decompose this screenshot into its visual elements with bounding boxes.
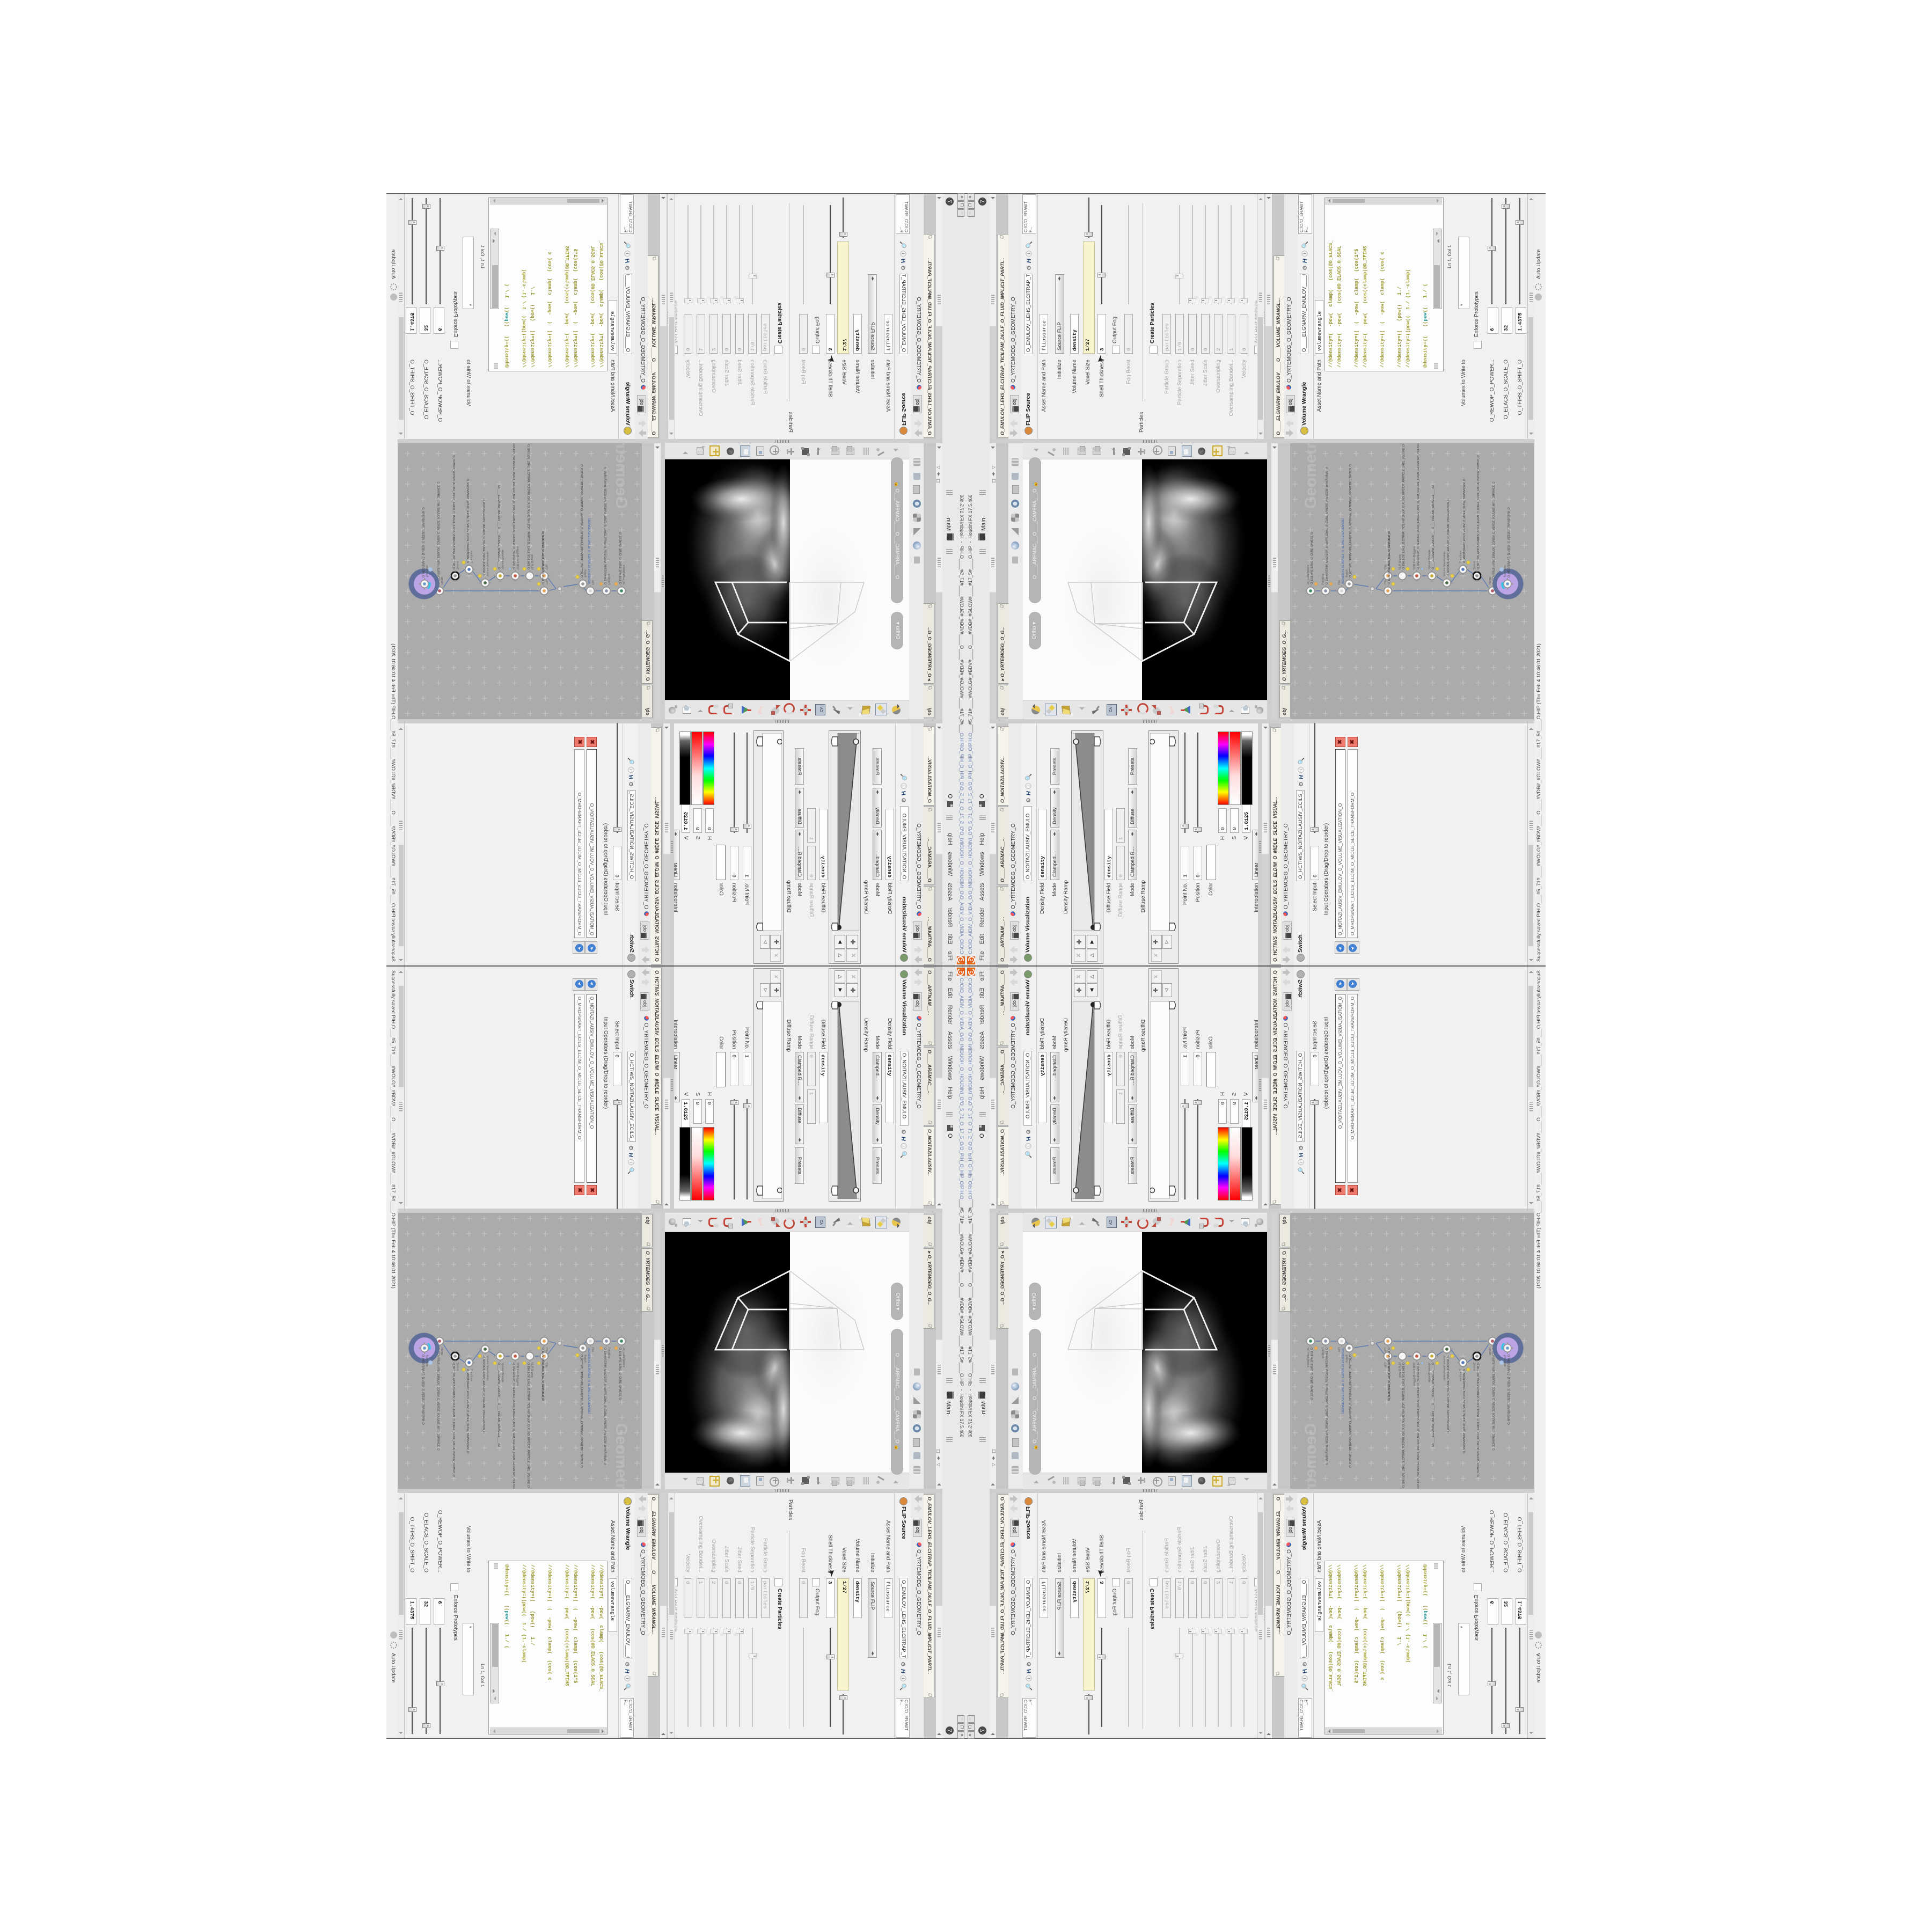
- svg-text:Clip: Clip: [1384, 1363, 1387, 1367]
- svg-text:O_MROFSNART_TLUSER_O_RESULT_TR: O_MROFSNART_TLUSER_O_RESULT_TRANSFORM_O: [421, 507, 425, 577]
- svg-text:FLIP Source: FLIP Source: [1399, 554, 1402, 569]
- svg-text:JBO.MD3.PETS.TEPOLS_O_SLOPET.S: JBO.MD3.PETS.TEPOLS_O_SLOPET.STEP.3DM.OB…: [587, 518, 590, 585]
- svg-text:O_MROFSNART_ECILS_ELDIM_O_MIDL: O_MROFSNART_ECILS_ELDIM_O_MIDLE_SLICE_TR…: [1463, 1369, 1466, 1453]
- svg-text:O_HCTIWS_NOITAZILAUSIV_ECILS_E: O_HCTIWS_NOITAZILAUSIV_ECILS_ELDIM_O_MID…: [1477, 455, 1480, 569]
- svg-text:Merge: Merge: [1489, 577, 1492, 584]
- svg-text:Transform: Transform: [1504, 1355, 1507, 1367]
- svg-text:Geometry: Geometry: [612, 1423, 630, 1489]
- svg-text:Switch: Switch: [583, 569, 587, 577]
- svg-text:Switch: Switch: [1345, 1355, 1349, 1363]
- svg-text:File: File: [591, 580, 594, 584]
- svg-text:Volume Visualization: Volume Visualization: [1443, 1356, 1446, 1380]
- svg-text:O_EMULOV_LEHS_ELCITRAP_TICILPM: O_EMULOV_LEHS_ELCITRAP_TICILPMI_DIULF_O_…: [1402, 1363, 1406, 1488]
- svg-text:O_MROFSNART_TLUSER_O_RESULT_TR: O_MROFSNART_TLUSER_O_RESULT_TRANSFORM_O: [1507, 507, 1511, 577]
- svg-text:JBO.MD3.PETS.TEPOLS_O_SLOPET.S: JBO.MD3.PETS.TEPOLS_O_SLOPET.STEP.3DM.OB…: [1342, 518, 1345, 585]
- svg-text:Geometry: Geometry: [612, 443, 630, 509]
- svg-text:Switch: Switch: [1473, 1363, 1476, 1371]
- svg-text:O_SNOGYLOP_YRTEMOEG_MORF_EMULO: O_SNOGYLOP_YRTEMOEG_MORF_EMULOV_BDV_O_VD…: [512, 443, 515, 569]
- svg-text:O_EMARFERIW_NOGYLOP_EREHPS_EBU: O_EMARFERIW_NOGYLOP_EREHPS_EBUC_O_CUBE_S…: [603, 467, 606, 584]
- svg-text:O____ELGNARW_EMULOV____O____VO: O____ELGNARW_EMULOV____O____VOLUME_WRANG…: [497, 485, 500, 569]
- svg-text:O_HCTIWS_YRTEMOEG_LANRETXE_O_I: O_HCTIWS_YRTEMOEG_LANRETXE_O_INTERNAL_EX…: [1349, 464, 1352, 577]
- svg-text:O_MROFSNART_ECILS_ELDIM_O_MIDL: O_MROFSNART_ECILS_ELDIM_O_MIDLE_SLICE_TR…: [466, 1369, 469, 1453]
- svg-text:PolyWire: PolyWire: [1322, 1348, 1325, 1358]
- svg-text:an_CubeSphere: an_CubeSphere: [1307, 565, 1310, 584]
- svg-text:Volume Visualization: Volume Visualization: [486, 552, 489, 576]
- svg-text:Merge: Merge: [440, 577, 443, 584]
- svg-text:File: File: [591, 1348, 594, 1352]
- svg-text:O_NOITAZILAUSIV_EMULOV_O_VOLUM: O_NOITAZILAUSIV_EMULOV_O_VOLUME_VISUALIZ…: [1447, 499, 1450, 576]
- svg-text:O_EMARFERIW_NOGYLOP_EREHPS_EBU: O_EMARFERIW_NOGYLOP_EREHPS_EBUC_O_CUBE_S…: [1326, 1348, 1329, 1465]
- svg-text:O_ECAFRUS_HTIW_EMULOV_EGREM_O_: O_ECAFRUS_HTIW_EMULOV_EGREM_O_MERGE_VOLU…: [1492, 482, 1496, 584]
- svg-text:Clip: Clip: [1384, 1348, 1387, 1352]
- svg-text:O_SNOGYLOP_YRTEMOEG_MORF_EMULO: O_SNOGYLOP_YRTEMOEG_MORF_EMULOV_BDV_O_VD…: [1417, 1363, 1420, 1489]
- svg-text:File: File: [1338, 580, 1341, 584]
- svg-text:O_EMULOV_LEHS_ELCITRAP_TICILPM: O_EMULOV_LEHS_ELCITRAP_TICILPMI_DIULF_O_…: [526, 444, 530, 569]
- svg-text:Transform: Transform: [470, 1369, 473, 1381]
- svg-text:Volume Visualization: Volume Visualization: [1443, 552, 1446, 576]
- svg-text:O____ELGNARW_EMULOV____O____VO: O____ELGNARW_EMULOV____O____VOLUME_WRANG…: [1432, 1363, 1435, 1447]
- svg-text:Clip: Clip: [545, 580, 548, 584]
- svg-text:PolyWire: PolyWire: [1322, 574, 1325, 584]
- svg-text:VDB from Polygons: VDB from Polygons: [1413, 546, 1416, 569]
- svg-text:O_HCTIWS_YRTEMOEG_LANRETXE_O_I: O_HCTIWS_YRTEMOEG_LANRETXE_O_INTERNAL_EX…: [1349, 1355, 1352, 1468]
- svg-text:O_ECAFRUS_HTIW_EMULOV_EGREM_O_: O_ECAFRUS_HTIW_EMULOV_EGREM_O_MERGE_VOLU…: [1492, 1348, 1496, 1450]
- svg-text:O_MROFSNART_TLUSER_O_RESULT_TR: O_MROFSNART_TLUSER_O_RESULT_TRANSFORM_O: [1507, 1355, 1511, 1425]
- svg-text:VDB from Polygons: VDB from Polygons: [1413, 1363, 1416, 1386]
- svg-text:O_EMARFERIW_NOGYLOP_EREHPS_EBU: O_EMARFERIW_NOGYLOP_EREHPS_EBUC_O_CUBE_S…: [1326, 467, 1329, 584]
- svg-text:Volume Wrangle: Volume Wrangle: [501, 550, 504, 569]
- svg-text:O_SNOGYLOP_YRTEMOEG_MORF_EMULO: O_SNOGYLOP_YRTEMOEG_MORF_EMULOV_BDV_O_VD…: [512, 1363, 515, 1489]
- svg-text:Switch: Switch: [456, 1363, 459, 1371]
- svg-text:Merge: Merge: [440, 1348, 443, 1355]
- svg-text:O_SNOGYLOP_YRTEMOEG_MORF_EMULO: O_SNOGYLOP_YRTEMOEG_MORF_EMULOV_BDV_O_VD…: [1417, 443, 1420, 569]
- svg-text:O_EMULOV_LEHS_ELCITRAP_TICILPM: O_EMULOV_LEHS_ELCITRAP_TICILPMI_DIULF_O_…: [526, 1363, 530, 1488]
- svg-text:Switch: Switch: [1473, 561, 1476, 569]
- svg-text:O____ELGNARW_EMULOV____O____VO: O____ELGNARW_EMULOV____O____VOLUME_WRANG…: [497, 1363, 500, 1447]
- svg-text:Clip: Clip: [1384, 580, 1387, 584]
- svg-text:Merge: Merge: [1489, 1348, 1492, 1355]
- svg-text:O_HCTIWS_YRTEMOEG_LANRETXE_O_I: O_HCTIWS_YRTEMOEG_LANRETXE_O_INTERNAL_EX…: [580, 464, 583, 577]
- svg-text:Switch: Switch: [583, 1355, 587, 1363]
- svg-text:O_HCTIWS_YRTEMOEG_LANRETXE_O_I: O_HCTIWS_YRTEMOEG_LANRETXE_O_INTERNAL_EX…: [580, 1355, 583, 1468]
- svg-text:JBO.MD3.PETS.TEPOLS_O_SLOPET.S: JBO.MD3.PETS.TEPOLS_O_SLOPET.STEP.3DM.OB…: [587, 1347, 590, 1414]
- svg-text:Transform: Transform: [1504, 565, 1507, 577]
- svg-text:Volume Visualization: Volume Visualization: [486, 1356, 489, 1380]
- svg-text:O_MROFSNART_TLUSER_O_RESULT_TR: O_MROFSNART_TLUSER_O_RESULT_TRANSFORM_O: [421, 1355, 425, 1425]
- svg-text:O_HCTIWS_NOITAZILAUSIV_ECILS_E: O_HCTIWS_NOITAZILAUSIV_ECILS_ELDIM_O_MID…: [452, 455, 455, 569]
- svg-text:O_MROFSNART_ECILS_ELDIM_O_MIDL: O_MROFSNART_ECILS_ELDIM_O_MIDLE_SLICE_TR…: [466, 479, 469, 563]
- svg-text:Switch: Switch: [1345, 569, 1349, 577]
- svg-text:O_MROFSNART_ECILS_ELDIM_O_MIDL: O_MROFSNART_ECILS_ELDIM_O_MIDLE_SLICE_TR…: [1463, 479, 1466, 563]
- svg-text:O_EMULOV_LEHS_ELCITRAP_TICILPM: O_EMULOV_LEHS_ELCITRAP_TICILPMI_DIULF_O_…: [1402, 444, 1406, 569]
- svg-text:FLIP Source: FLIP Source: [1399, 1363, 1402, 1378]
- svg-text:O_ECAFRUS_PILC_O_CLIP_SURFACE_: O_ECAFRUS_PILC_O_CLIP_SURFACE_O: [1388, 1348, 1391, 1400]
- svg-text:O_EREHPS_EBUC_O_CUBE_SPHERE_O: O_EREHPS_EBUC_O_CUBE_SPHERE_O: [618, 532, 621, 584]
- svg-text:O_EREHPS_EBUC_O_CUBE_SPHERE_O: O_EREHPS_EBUC_O_CUBE_SPHERE_O: [618, 1348, 621, 1400]
- svg-text:PolyWire: PolyWire: [607, 1348, 610, 1358]
- svg-text:O_HCTIWS_NOITAZILAUSIV_ECILS_E: O_HCTIWS_NOITAZILAUSIV_ECILS_ELDIM_O_MID…: [452, 1363, 455, 1477]
- svg-text:O_ECAFRUS_HTIW_EMULOV_EGREM_O_: O_ECAFRUS_HTIW_EMULOV_EGREM_O_MERGE_VOLU…: [436, 482, 440, 584]
- svg-text:Clip: Clip: [545, 1348, 548, 1352]
- svg-text:VDB from Polygons: VDB from Polygons: [516, 1363, 519, 1386]
- svg-text:PolyWire: PolyWire: [607, 574, 610, 584]
- svg-text:Clip: Clip: [545, 1363, 548, 1367]
- svg-text:O_NOITAZILAUSIV_EMULOV_O_VOLUM: O_NOITAZILAUSIV_EMULOV_O_VOLUME_VISUALIZ…: [482, 1356, 485, 1433]
- svg-text:FLIP Source: FLIP Source: [530, 554, 533, 569]
- svg-text:Geometry: Geometry: [1302, 1423, 1320, 1489]
- svg-text:O_ECAFRUS_HTIW_EMULOV_EGREM_O_: O_ECAFRUS_HTIW_EMULOV_EGREM_O_MERGE_VOLU…: [436, 1348, 440, 1450]
- svg-text:Clip: Clip: [545, 565, 548, 569]
- svg-text:JBO.MD3.PETS.TEPOLS_O_SLOPET.S: JBO.MD3.PETS.TEPOLS_O_SLOPET.STEP.3DM.OB…: [1342, 1347, 1345, 1414]
- svg-text:an_CubeSphere: an_CubeSphere: [1307, 1348, 1310, 1367]
- svg-text:Transform: Transform: [1459, 551, 1462, 563]
- svg-text:Volume Wrangle: Volume Wrangle: [501, 1363, 504, 1382]
- svg-text:FLIP Source: FLIP Source: [530, 1363, 533, 1378]
- svg-text:Transform: Transform: [1459, 1369, 1462, 1381]
- svg-text:VDB from Polygons: VDB from Polygons: [516, 546, 519, 569]
- svg-text:an_CubeSphere: an_CubeSphere: [622, 565, 625, 584]
- svg-text:O_ECAFRUS_PILC_O_CLIP_SURFACE_: O_ECAFRUS_PILC_O_CLIP_SURFACE_O: [541, 1348, 544, 1400]
- svg-text:File: File: [1338, 1348, 1341, 1352]
- svg-text:Switch: Switch: [456, 561, 459, 569]
- svg-text:O_NOITAZILAUSIV_EMULOV_O_VOLUM: O_NOITAZILAUSIV_EMULOV_O_VOLUME_VISUALIZ…: [482, 499, 485, 576]
- svg-text:Transform: Transform: [470, 551, 473, 563]
- svg-text:O_NOITAZILAUSIV_EMULOV_O_VOLUM: O_NOITAZILAUSIV_EMULOV_O_VOLUME_VISUALIZ…: [1447, 1356, 1450, 1433]
- svg-text:O_EMARFERIW_NOGYLOP_EREHPS_EBU: O_EMARFERIW_NOGYLOP_EREHPS_EBUC_O_CUBE_S…: [603, 1348, 606, 1465]
- svg-text:O_ECAFRUS_PILC_O_CLIP_SURFACE_: O_ECAFRUS_PILC_O_CLIP_SURFACE_O: [1388, 532, 1391, 584]
- svg-text:Volume Wrangle: Volume Wrangle: [1428, 1363, 1431, 1382]
- svg-text:O_EREHPS_EBUC_O_CUBE_SPHERE_O: O_EREHPS_EBUC_O_CUBE_SPHERE_O: [1311, 532, 1314, 584]
- svg-text:Clip: Clip: [1384, 565, 1387, 569]
- svg-text:Transform: Transform: [425, 1355, 428, 1367]
- svg-text:Transform: Transform: [425, 565, 428, 577]
- svg-text:O_EREHPS_EBUC_O_CUBE_SPHERE_O: O_EREHPS_EBUC_O_CUBE_SPHERE_O: [1311, 1348, 1314, 1400]
- svg-text:Volume Wrangle: Volume Wrangle: [1428, 550, 1431, 569]
- svg-text:O_HCTIWS_NOITAZILAUSIV_ECILS_E: O_HCTIWS_NOITAZILAUSIV_ECILS_ELDIM_O_MID…: [1477, 1363, 1480, 1477]
- svg-text:an_CubeSphere: an_CubeSphere: [622, 1348, 625, 1367]
- svg-text:Geometry: Geometry: [1302, 443, 1320, 509]
- svg-text:O_ECAFRUS_PILC_O_CLIP_SURFACE_: O_ECAFRUS_PILC_O_CLIP_SURFACE_O: [541, 532, 544, 584]
- svg-text:O____ELGNARW_EMULOV____O____VO: O____ELGNARW_EMULOV____O____VOLUME_WRANG…: [1432, 485, 1435, 569]
